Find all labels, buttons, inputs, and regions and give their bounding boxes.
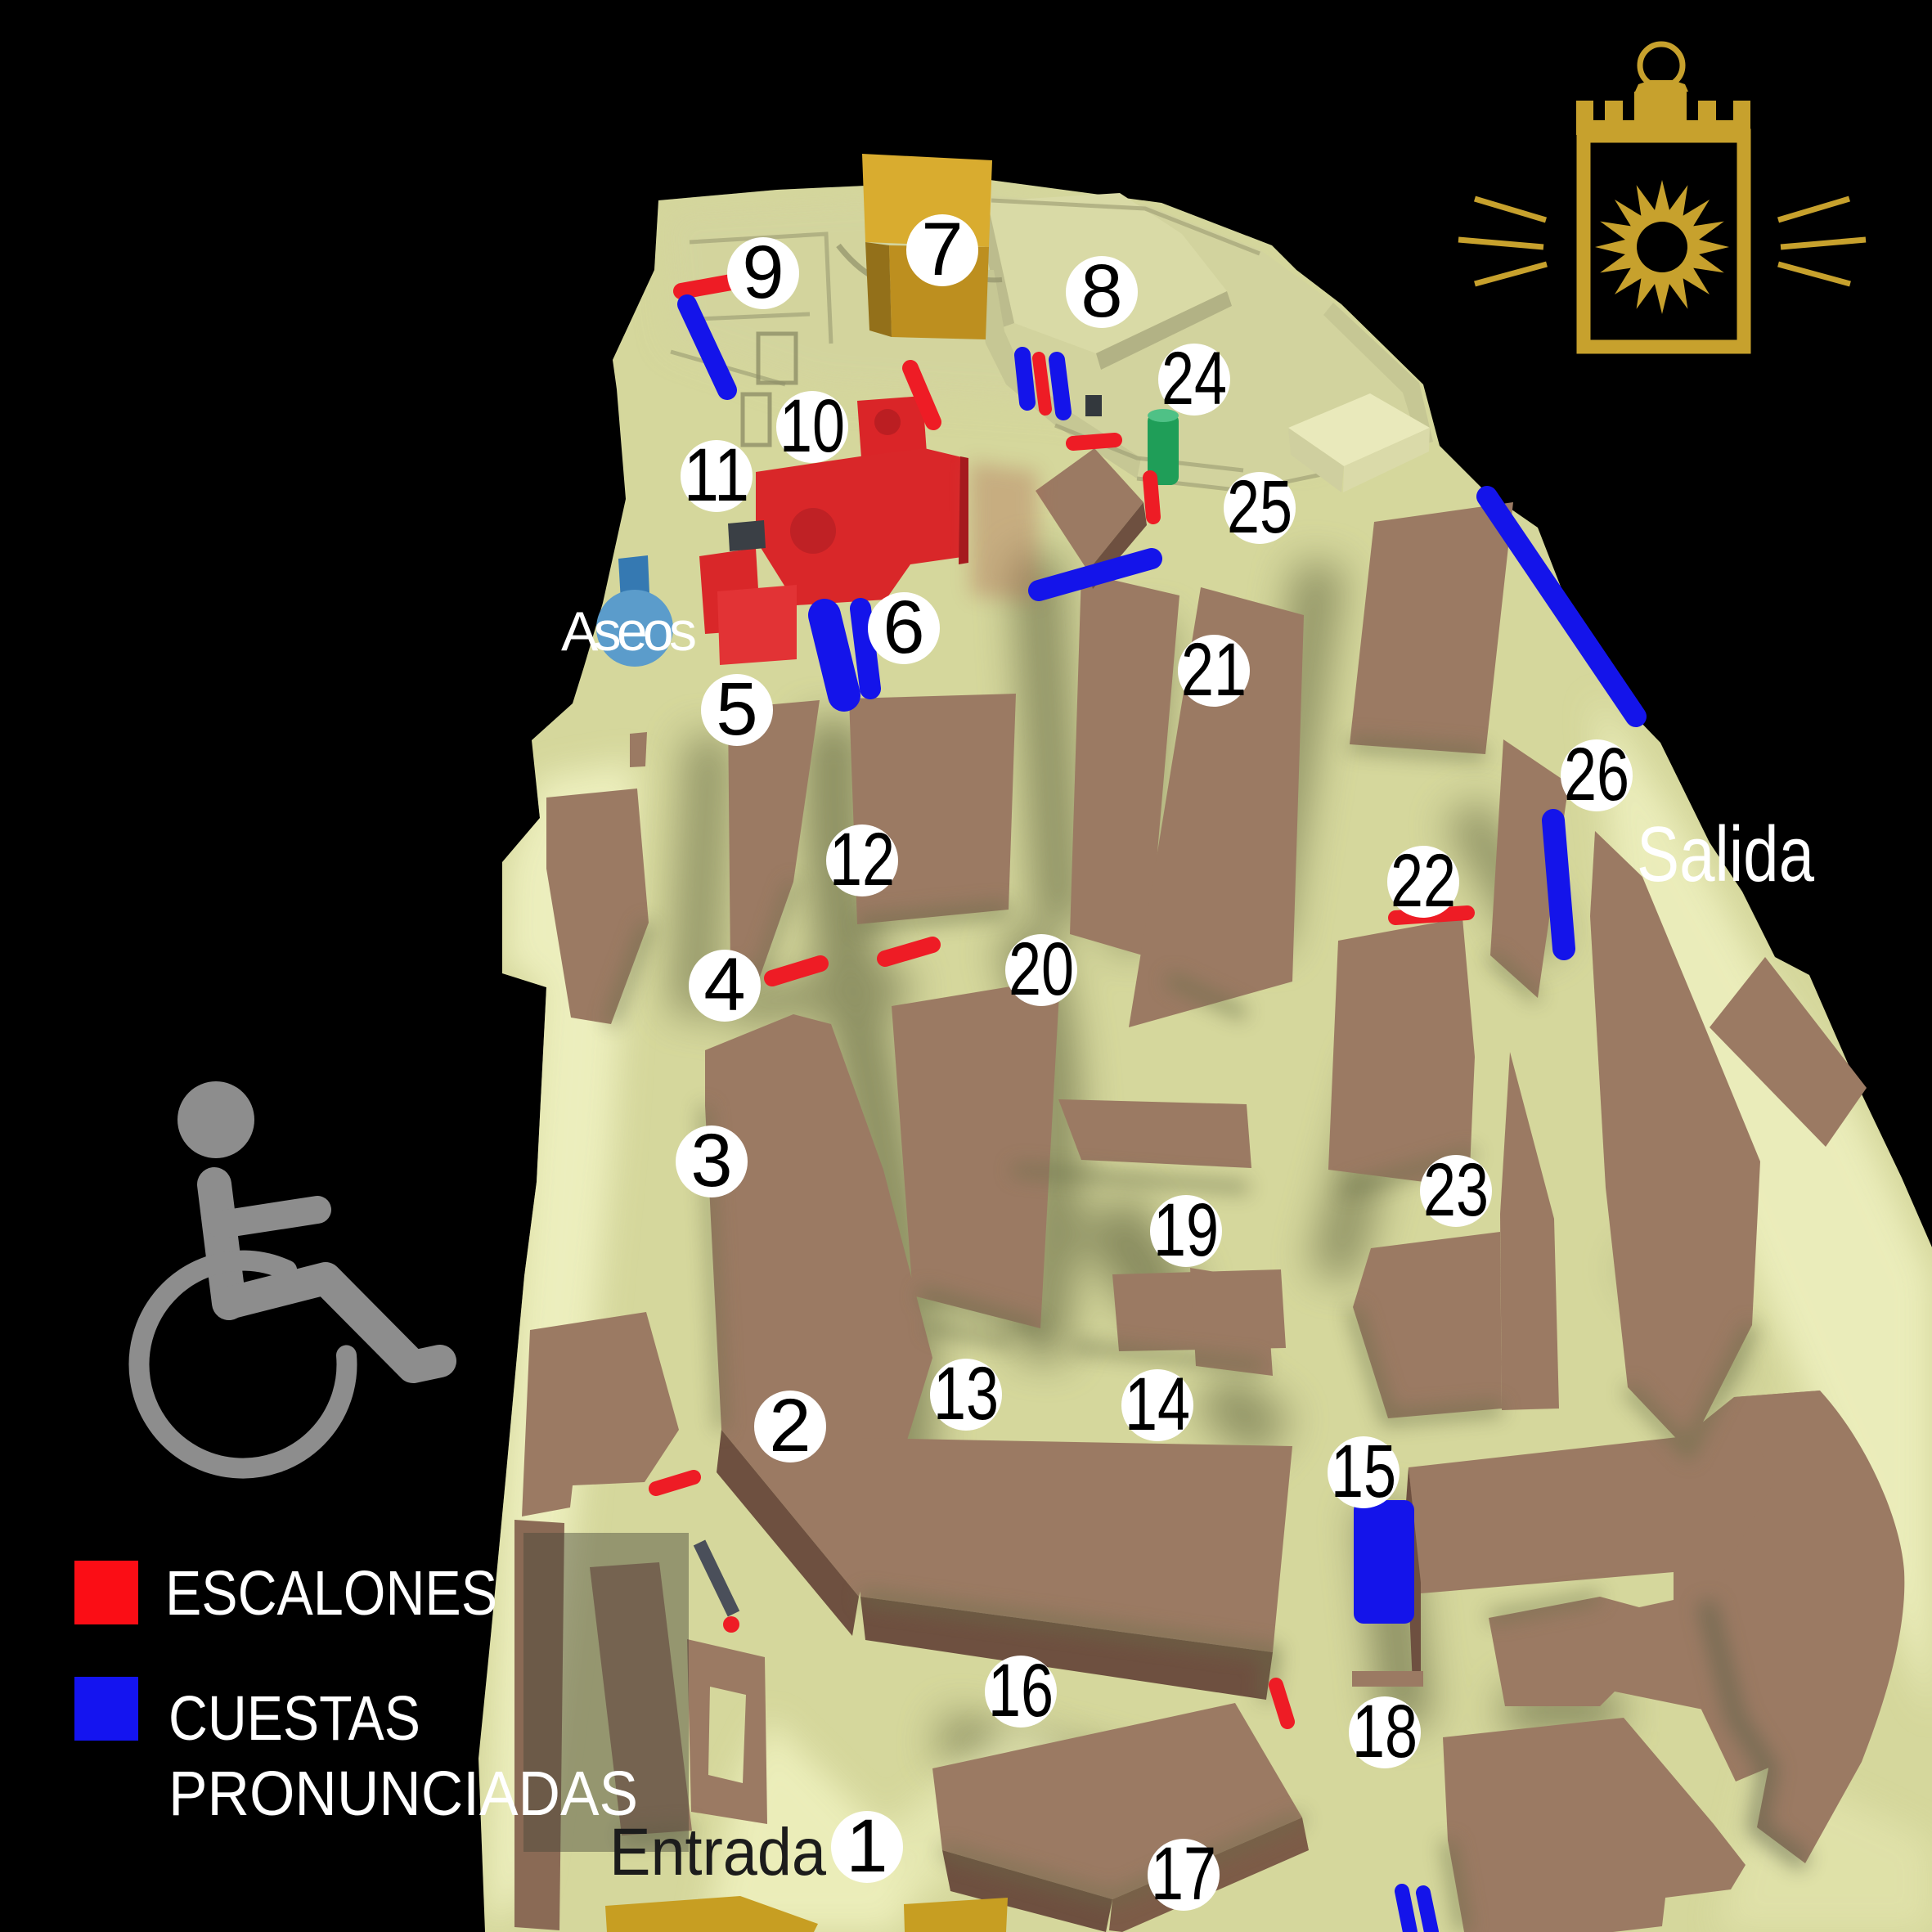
svg-text:18: 18 xyxy=(1352,1690,1418,1773)
svg-text:24: 24 xyxy=(1161,337,1227,420)
svg-text:23: 23 xyxy=(1423,1148,1489,1232)
svg-text:22: 22 xyxy=(1391,839,1456,923)
svg-text:CUESTAS: CUESTAS xyxy=(168,1683,420,1754)
svg-text:16: 16 xyxy=(988,1649,1054,1732)
svg-text:9: 9 xyxy=(742,231,784,314)
svg-text:7: 7 xyxy=(921,208,963,291)
svg-text:5: 5 xyxy=(716,667,757,751)
svg-text:26: 26 xyxy=(1564,733,1629,816)
svg-text:Aseos: Aseos xyxy=(561,600,697,663)
svg-text:17: 17 xyxy=(1151,1832,1216,1916)
svg-text:13: 13 xyxy=(933,1352,999,1436)
svg-text:19: 19 xyxy=(1153,1188,1219,1272)
svg-text:25: 25 xyxy=(1227,465,1292,549)
svg-text:11: 11 xyxy=(684,434,749,517)
svg-text:10: 10 xyxy=(780,384,845,468)
svg-text:8: 8 xyxy=(1081,249,1122,333)
svg-text:1: 1 xyxy=(846,1804,887,1888)
svg-text:3: 3 xyxy=(690,1119,732,1202)
svg-text:Entrada: Entrada xyxy=(609,1815,826,1889)
svg-text:4: 4 xyxy=(703,943,745,1027)
svg-text:Salida: Salida xyxy=(1637,811,1814,898)
svg-text:2: 2 xyxy=(769,1384,811,1467)
svg-text:ESCALONES: ESCALONES xyxy=(165,1558,497,1629)
svg-text:6: 6 xyxy=(883,586,924,669)
svg-text:20: 20 xyxy=(1009,928,1074,1011)
svg-text:14: 14 xyxy=(1125,1363,1190,1446)
svg-text:15: 15 xyxy=(1331,1430,1396,1513)
svg-text:21: 21 xyxy=(1181,628,1247,712)
svg-text:PRONUNCIADAS: PRONUNCIADAS xyxy=(168,1759,638,1829)
svg-text:12: 12 xyxy=(829,818,895,901)
